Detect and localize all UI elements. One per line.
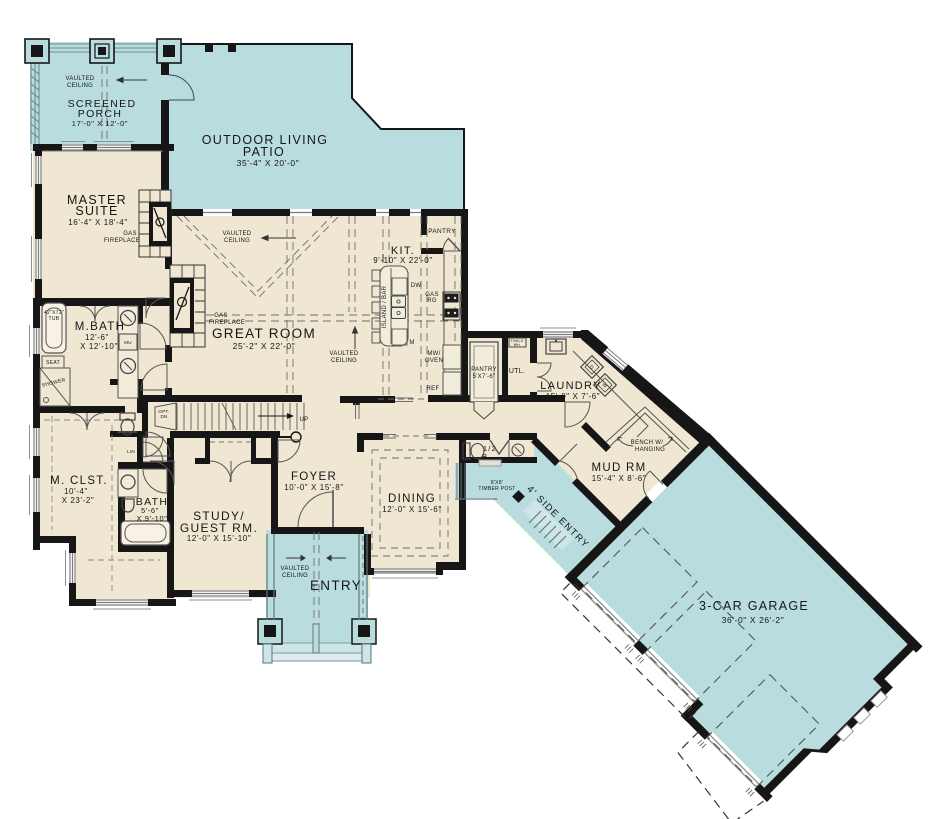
svg-text:RG: RG (427, 298, 437, 304)
svg-text:FIREPLACE: FIREPLACE (209, 320, 245, 326)
svg-text:12'-0" X 15'-6": 12'-0" X 15'-6" (382, 505, 442, 514)
svg-text:CEILING: CEILING (331, 358, 357, 364)
svg-text:X 9'-10": X 9'-10" (137, 514, 168, 523)
svg-text:36'-0" X 26'-2": 36'-0" X 26'-2" (722, 615, 785, 625)
svg-text:VAULTED: VAULTED (66, 76, 95, 82)
svg-text:5'X7'-6": 5'X7'-6" (473, 374, 496, 380)
svg-text:16'-4" X 18'-4": 16'-4" X 18'-4" (68, 218, 128, 227)
svg-text:ISLAND / BAR: ISLAND / BAR (382, 285, 388, 328)
svg-text:9'-10" X 22'-0": 9'-10" X 22'-0" (373, 256, 433, 265)
svg-text:SEAT: SEAT (46, 360, 60, 366)
svg-text:WH: WH (514, 343, 521, 347)
svg-text:CEILING: CEILING (282, 573, 308, 579)
svg-text:M.BATH: M.BATH (75, 321, 125, 333)
svg-text:10'-0" X 15'-8": 10'-0" X 15'-8" (284, 483, 344, 492)
svg-text:OVEN: OVEN (425, 358, 443, 364)
svg-text:UP: UP (300, 417, 309, 423)
svg-text:LIN: LIN (127, 449, 135, 454)
svg-text:PANTRY: PANTRY (428, 228, 456, 235)
svg-text:12'-0" X 15'-10": 12'-0" X 15'-10" (187, 534, 252, 543)
svg-text:GUEST RM.: GUEST RM. (180, 521, 258, 535)
svg-text:M. CLST.: M. CLST. (50, 475, 108, 487)
svg-text:15'-4" X 8'-6": 15'-4" X 8'-6" (592, 474, 647, 483)
svg-text:TIMBER POST: TIMBER POST (478, 486, 515, 492)
svg-text:ENTRY: ENTRY (310, 578, 362, 593)
svg-text:DW: DW (411, 283, 422, 289)
svg-text:TUB: TUB (49, 316, 60, 322)
svg-text:X 23'-2": X 23'-2" (62, 496, 95, 505)
svg-text:HANGING: HANGING (635, 447, 665, 453)
svg-text:FOYER: FOYER (291, 471, 337, 483)
svg-text:12'-6": 12'-6" (85, 333, 109, 342)
svg-text:15'-0" X 7'-6": 15'-0" X 7'-6" (546, 392, 601, 401)
svg-text:UTL.: UTL. (509, 368, 525, 375)
svg-text:SUITE: SUITE (75, 204, 118, 218)
svg-text:VAULTED: VAULTED (281, 566, 310, 572)
svg-text:10'-4": 10'-4" (64, 487, 88, 496)
svg-text:CEILING: CEILING (67, 83, 93, 89)
svg-text:BENCH W/: BENCH W/ (631, 440, 663, 446)
svg-text:CEILING: CEILING (224, 238, 250, 244)
svg-text:GREAT ROOM: GREAT ROOM (212, 326, 316, 341)
svg-text:DINING: DINING (388, 493, 436, 505)
svg-text:17'-0" X 12'-0": 17'-0" X 12'-0" (72, 119, 128, 128)
svg-text:MUD RM: MUD RM (591, 462, 646, 474)
svg-text:PATIO: PATIO (243, 145, 285, 159)
svg-text:M: M (409, 340, 414, 346)
svg-text:GAS: GAS (123, 231, 137, 237)
svg-text:VAULTED: VAULTED (223, 231, 252, 237)
svg-text:25'-2" X 22'-0": 25'-2" X 22'-0" (233, 341, 296, 351)
svg-text:3-CAR GARAGE: 3-CAR GARAGE (699, 599, 809, 613)
svg-text:X 12'-10": X 12'-10" (80, 342, 118, 351)
svg-text:VAULTED: VAULTED (330, 351, 359, 357)
svg-text:B.: B. (482, 452, 492, 461)
svg-text:35'-4" X 20'-0": 35'-4" X 20'-0" (237, 158, 300, 168)
svg-text:DN: DN (160, 414, 167, 419)
svg-text:PANTRY: PANTRY (471, 367, 497, 373)
svg-text:LAUNDRY: LAUNDRY (540, 380, 601, 392)
svg-text:GAS: GAS (214, 313, 228, 319)
svg-text:FIREPLACE: FIREPLACE (104, 238, 140, 244)
svg-text:REF: REF (427, 386, 440, 392)
svg-text:MU: MU (124, 340, 132, 345)
svg-text:MW/: MW/ (427, 351, 440, 357)
